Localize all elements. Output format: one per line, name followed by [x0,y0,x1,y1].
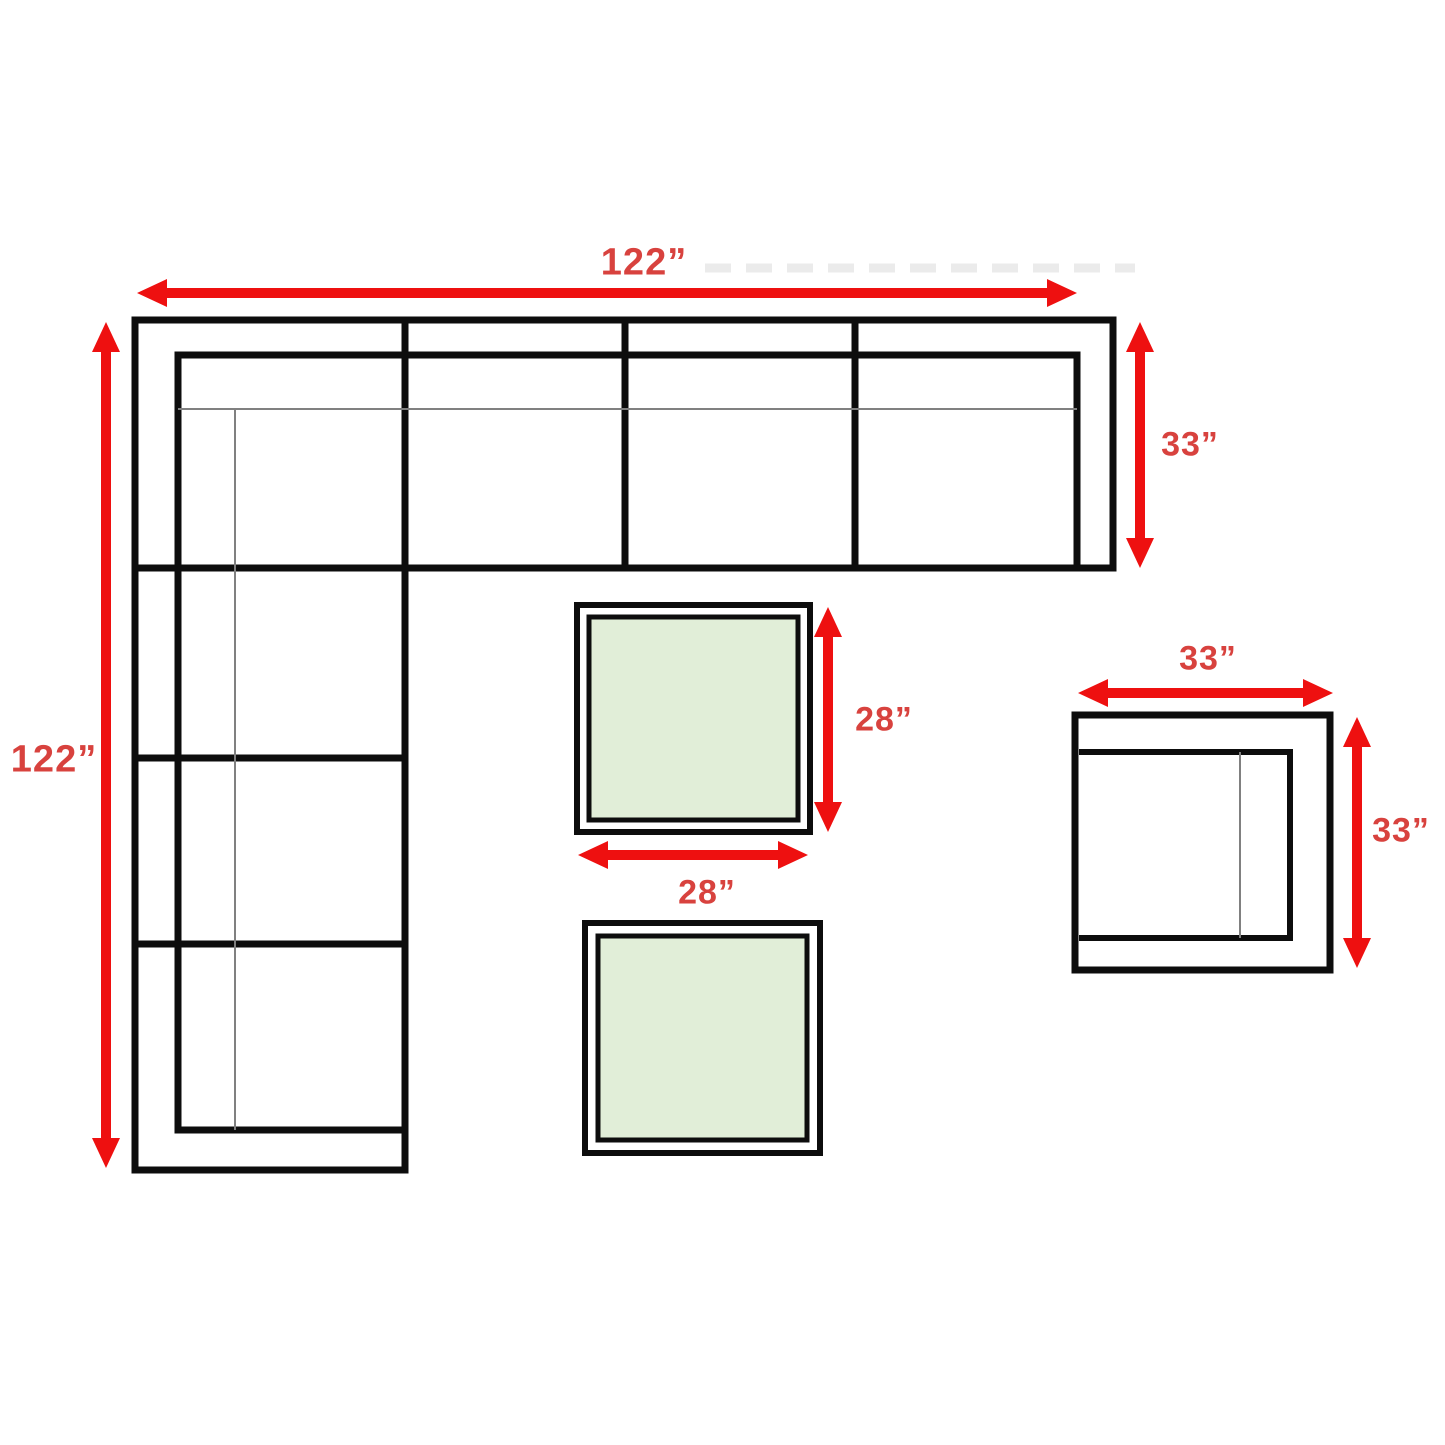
table-glass-top [598,936,807,1140]
table-depth-label: 28” [855,701,913,740]
chair-width-arrow [1078,679,1333,707]
table-width-label: 28” [678,874,736,913]
chair-depth-label: 33” [1372,812,1430,851]
diagram-canvas: 122” 122” 33” 28” 28” 33” 33” [0,0,1445,1445]
chair-depth-arrow [1343,717,1371,968]
sofa-height-label: 122” [11,739,97,782]
furniture-dimension-diagram [0,0,1445,1445]
coffee-table-1 [577,605,810,832]
sofa-depth-label: 33” [1161,426,1219,465]
sofa-width-label: 122” [601,242,687,285]
chair-outline [1075,715,1330,970]
coffee-table-2 [585,923,820,1153]
table-glass-top [589,617,798,820]
chair-width-label: 33” [1179,640,1237,679]
sofa-depth-arrow [1126,322,1154,568]
table-depth-arrow [814,607,842,832]
table-width-arrow [578,841,808,869]
